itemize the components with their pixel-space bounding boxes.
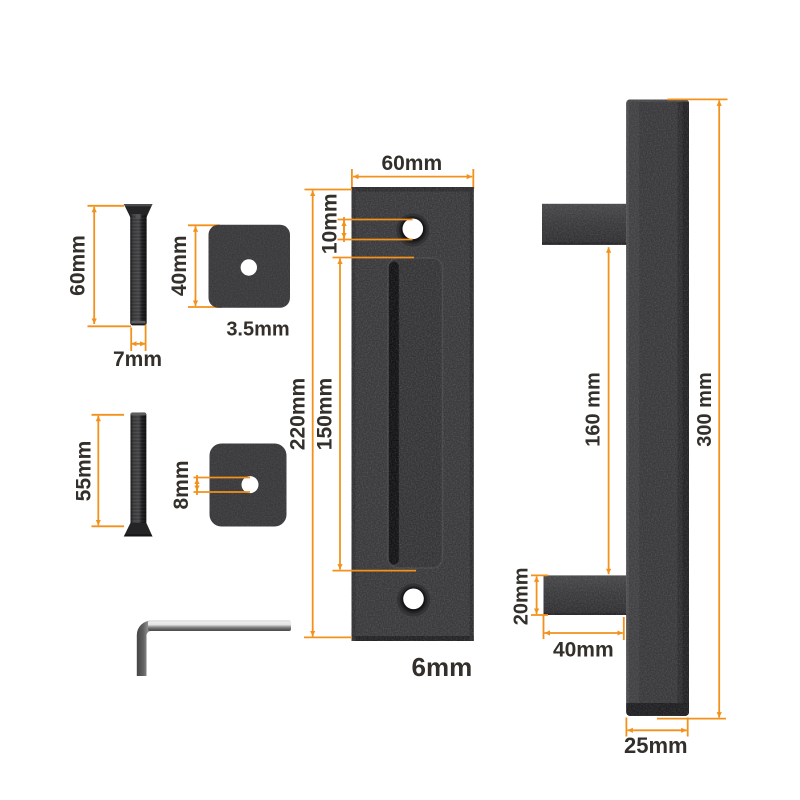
svg-text:55mm: 55mm	[73, 441, 96, 502]
svg-text:10mm: 10mm	[319, 193, 342, 254]
svg-text:25mm: 25mm	[624, 733, 688, 758]
svg-text:40mm: 40mm	[168, 235, 191, 296]
svg-text:6mm: 6mm	[412, 652, 473, 682]
svg-text:300 mm: 300 mm	[694, 372, 716, 447]
svg-text:60mm: 60mm	[67, 235, 90, 296]
svg-text:7mm: 7mm	[113, 348, 162, 371]
svg-text:160 mm: 160 mm	[583, 372, 605, 447]
svg-text:150mm: 150mm	[314, 378, 337, 450]
svg-text:20mm: 20mm	[511, 567, 533, 625]
svg-text:60mm: 60mm	[381, 152, 442, 175]
svg-text:40mm: 40mm	[553, 639, 614, 662]
svg-text:3.5mm: 3.5mm	[226, 319, 289, 341]
svg-text:8mm: 8mm	[170, 460, 193, 509]
svg-text:220mm: 220mm	[287, 378, 310, 450]
